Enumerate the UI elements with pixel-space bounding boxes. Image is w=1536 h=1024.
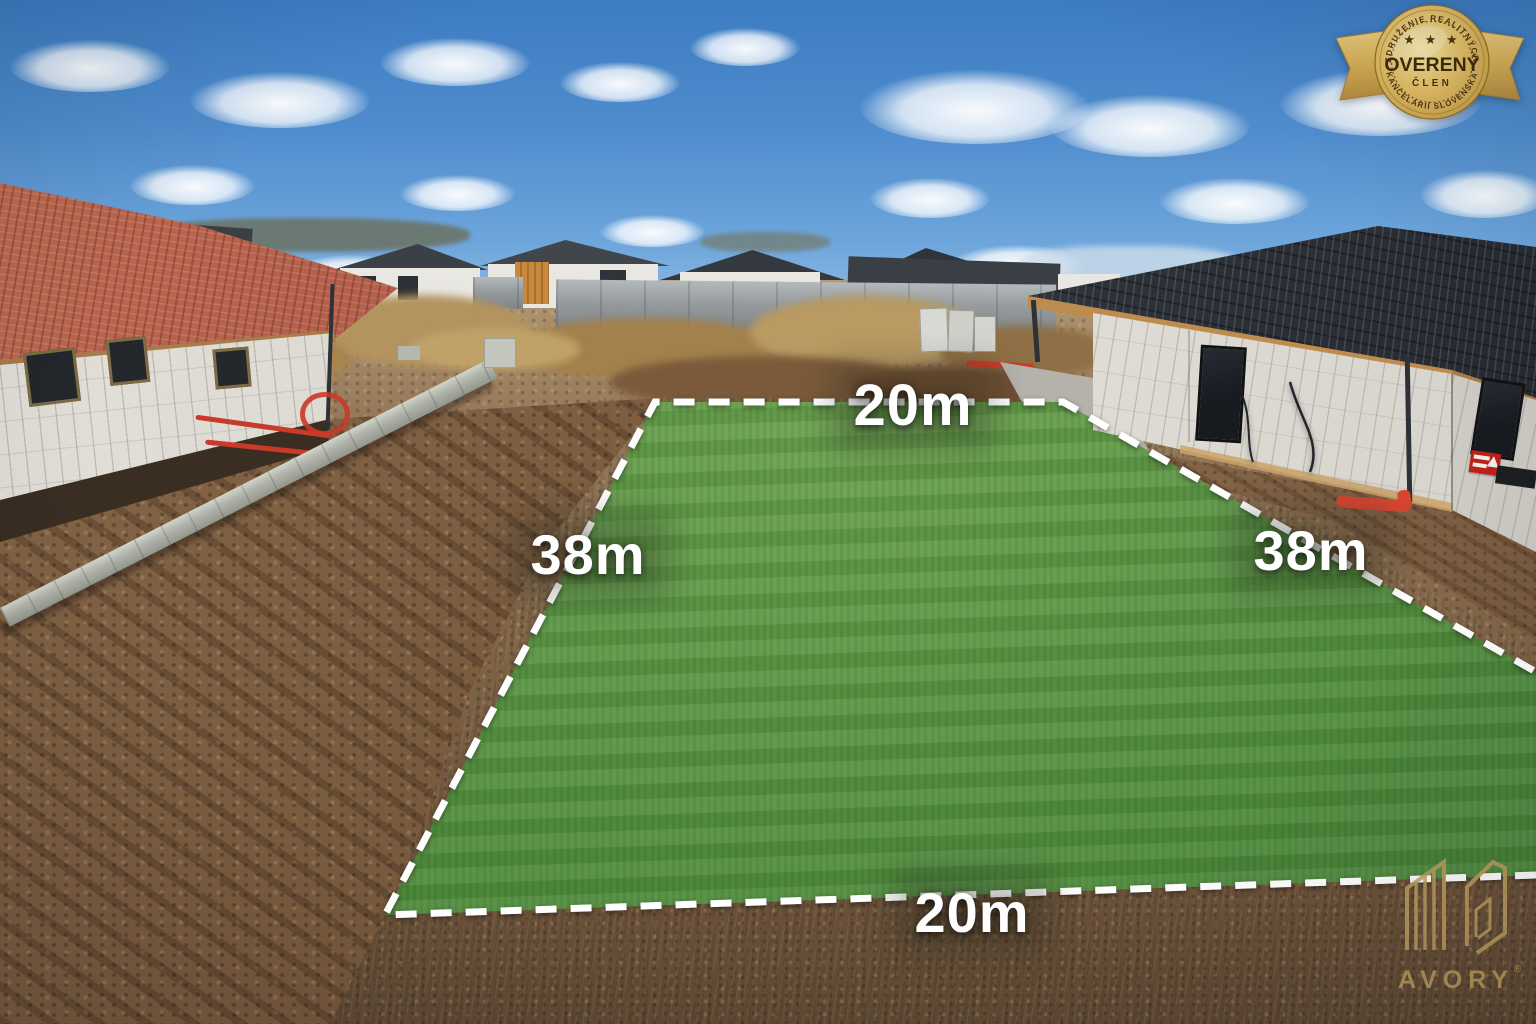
vignette — [0, 0, 1536, 1024]
listing-photo: 20m 38m 38m 20m ZDRUŽENIE REALITNÝCH KAN… — [0, 0, 1536, 1024]
